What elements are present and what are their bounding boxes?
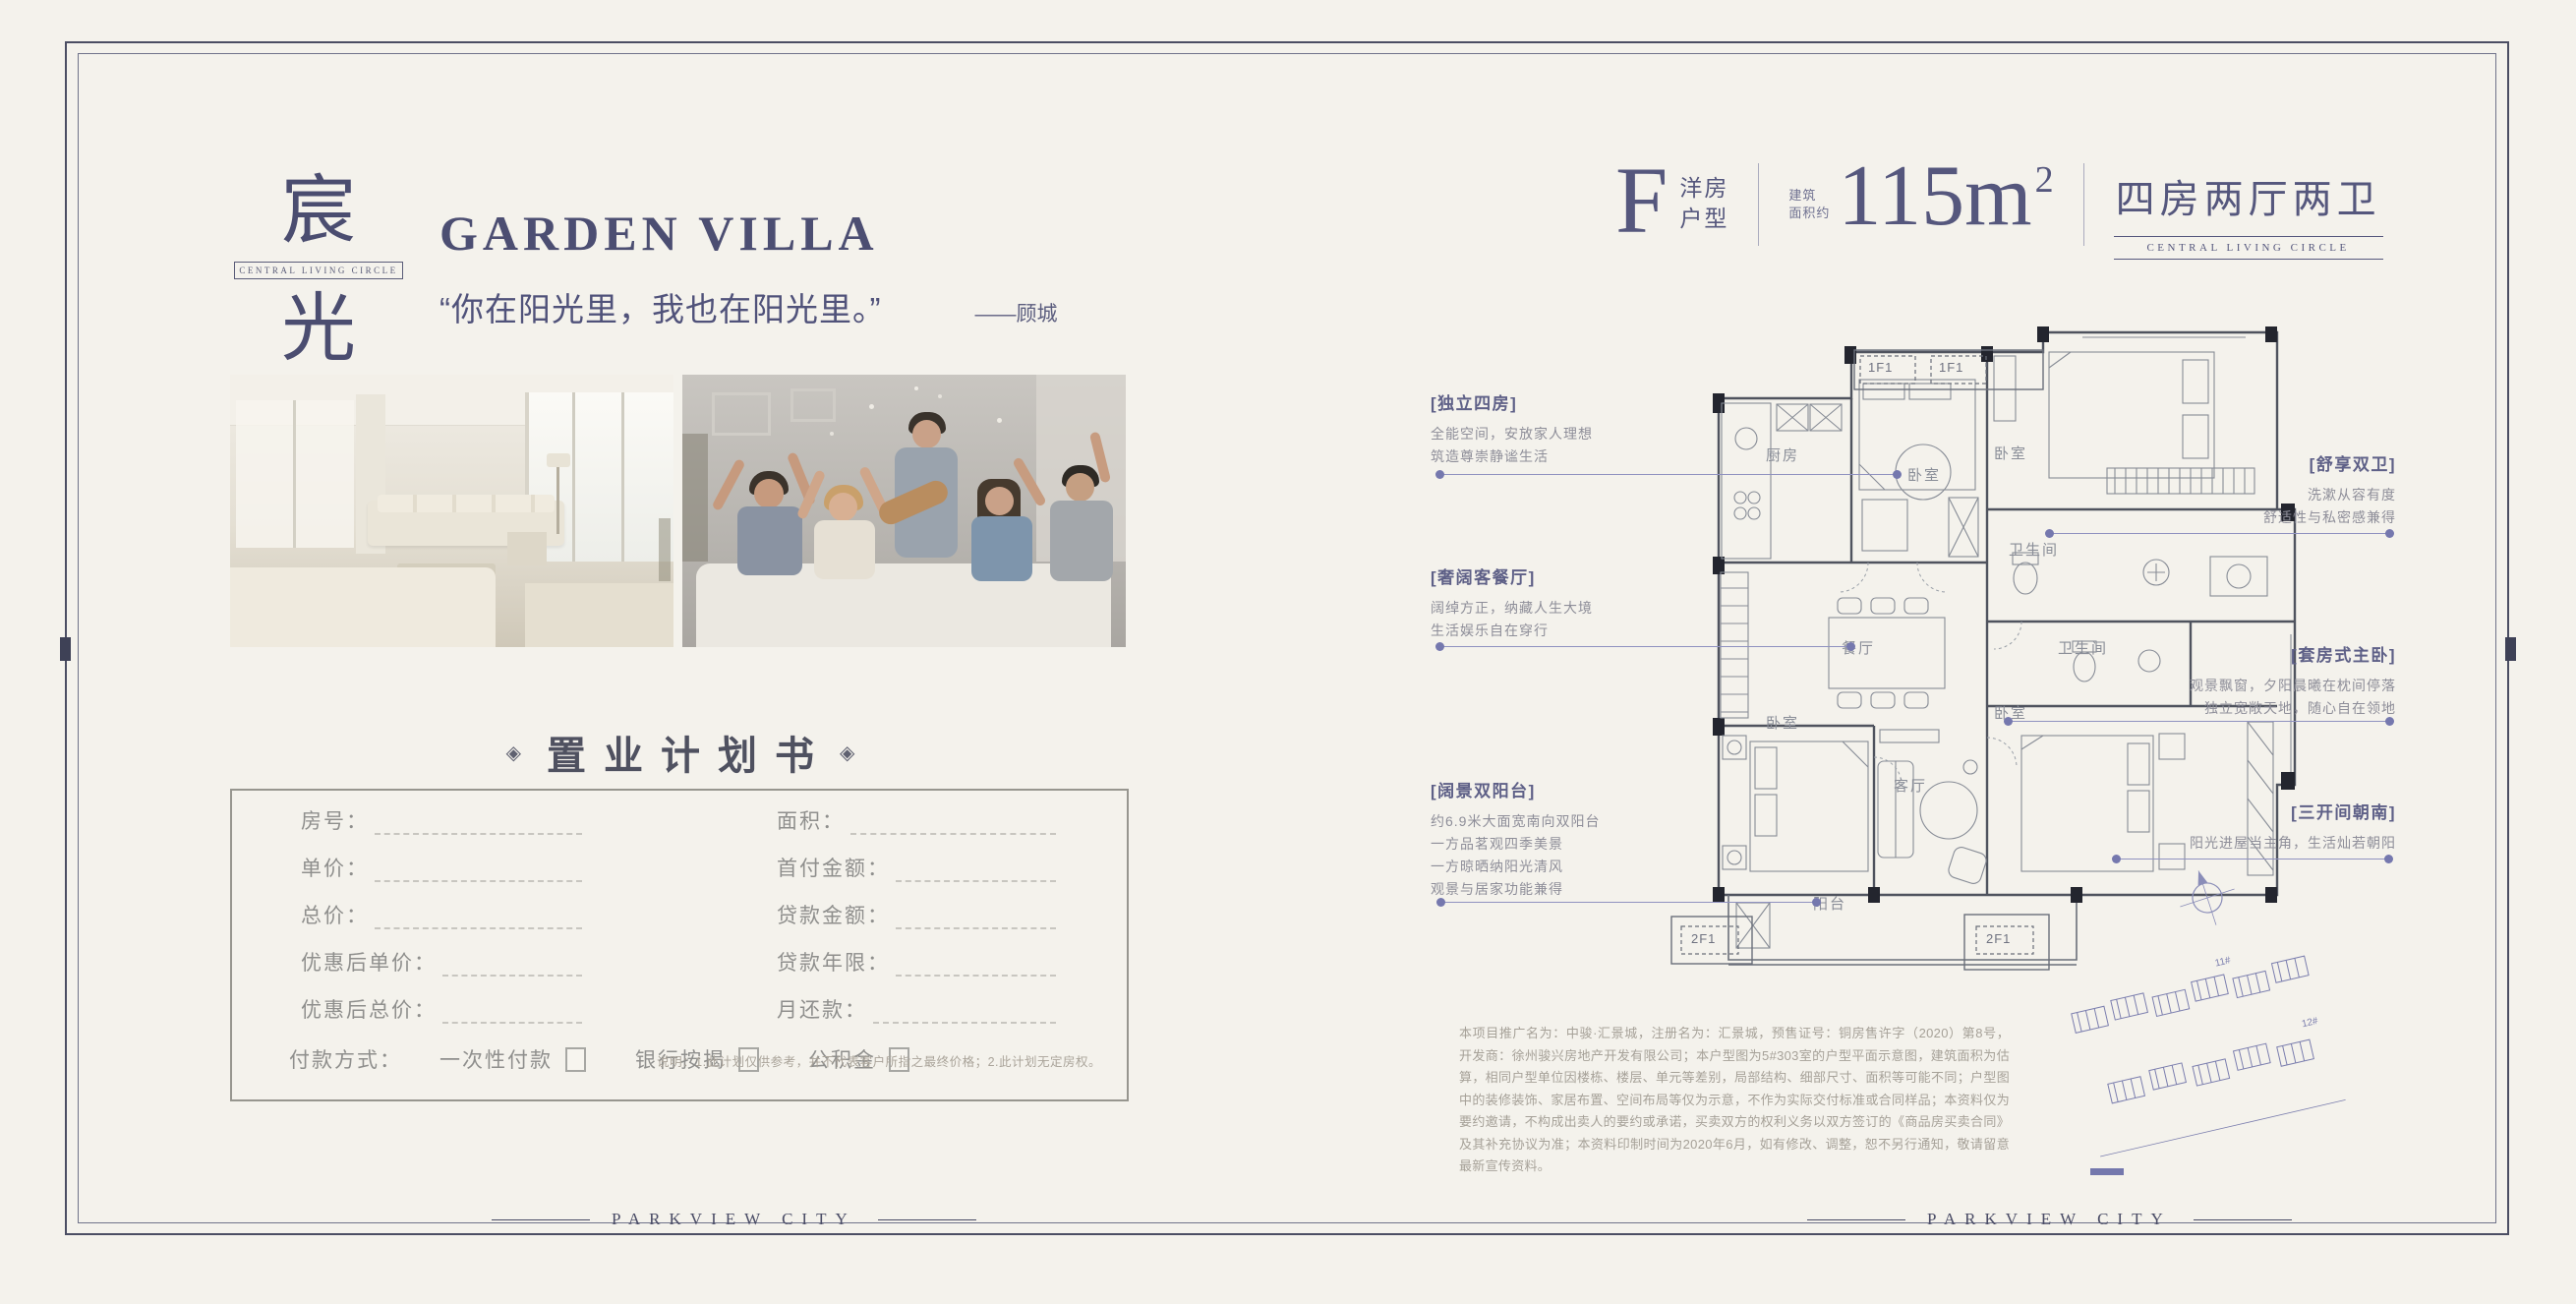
field-input-line[interactable] xyxy=(375,925,582,929)
area-prefix-line: 面积约 xyxy=(1788,205,1830,222)
form-note: 说明：1.此计划仅供参考，并不代表客户所指之最终价格；2.此计划无定房权。 xyxy=(657,1051,1101,1070)
unit-tag: 2F1 xyxy=(1691,931,1716,946)
quote-author: ——顾城 xyxy=(974,298,1057,327)
annotation-line: 观景飘窗，夕阳晨曦在枕间停落 xyxy=(2072,675,2396,697)
person-torso xyxy=(971,516,1032,581)
field-label-monthly-payment: 月还款： xyxy=(777,994,867,1024)
field-input-line[interactable] xyxy=(850,831,1056,835)
plant-shape xyxy=(682,434,708,562)
annotation-title: [套房式主卧] xyxy=(2072,641,2396,666)
field-input-line[interactable] xyxy=(873,1020,1056,1024)
room-label-bedroom-north: 卧室 xyxy=(1907,464,1941,485)
room-label-kitchen: 厨房 xyxy=(1766,445,1799,465)
unit-tag: 1F1 xyxy=(1868,360,1893,375)
annotation-line: 阳光进屋当主角，生活灿若朝阳 xyxy=(2072,832,2396,855)
annotation-line: 阔绰方正，纳藏人生大境 xyxy=(1431,597,1755,620)
quote-text: “你在阳光里，我也在阳光里。” xyxy=(439,283,881,330)
footer-text: PARKVIEW CITY xyxy=(1927,1210,2172,1229)
person-torso xyxy=(1050,501,1113,581)
annotation-line: 观景与居家功能兼得 xyxy=(1431,878,1755,901)
form-row: 优惠后总价： xyxy=(301,983,582,1031)
door-swings xyxy=(1839,563,2021,785)
form-row: 优惠后单价： xyxy=(301,936,582,983)
confetti-dot xyxy=(914,386,918,390)
window-mullion xyxy=(293,400,296,548)
room-label-living: 客厅 xyxy=(1894,775,1927,796)
legal-disclaimer: 本项目推广名为：中骏·汇景城，注册名为：汇景城，预售证号：铜房售许字（2020）… xyxy=(1459,1023,2010,1178)
form-row: 首付金额： xyxy=(777,842,1056,889)
footer-text: PARKVIEW CITY xyxy=(612,1210,856,1229)
form-column-left: 房号： 单价： 总价： 优惠后单价： 优惠后总价： xyxy=(301,795,582,1031)
payment-method-label: 付款方式： xyxy=(289,1044,402,1074)
logo-tagline: CENTRAL LIVING CIRCLE xyxy=(234,262,403,279)
footer-rule xyxy=(492,1219,590,1220)
annotation-line: 一方晾晒纳阳光清风 xyxy=(1431,856,1755,878)
footer-rule xyxy=(878,1219,976,1220)
plant-shape xyxy=(659,518,671,581)
field-input-line[interactable] xyxy=(896,973,1056,977)
wall-art-shape xyxy=(712,392,771,436)
field-label-loan-amount: 贷款金额： xyxy=(777,900,890,929)
leader-line xyxy=(1438,902,1819,903)
area-prefix: 建筑 面积约 xyxy=(1788,187,1830,222)
annotation-title: [三开间朝南] xyxy=(2072,799,2396,823)
window-mullion xyxy=(621,392,624,562)
field-input-line[interactable] xyxy=(896,925,1056,929)
annotation-south-facing: [三开间朝南] 阳光进屋当主角，生活灿若朝阳 xyxy=(2072,799,2396,855)
field-input-line[interactable] xyxy=(442,1020,582,1024)
person-head xyxy=(985,487,1014,515)
living-room-photo xyxy=(230,375,673,647)
room-label-bedroom-northeast: 卧室 xyxy=(1994,443,2027,463)
area-prefix-line: 建筑 xyxy=(1788,187,1830,205)
annotation-double-balcony: [阔景双阳台] 约6.9米大面宽南向双阳台 一方品茗观四季美景 一方晾晒纳阳光清… xyxy=(1431,777,1755,901)
leader-line xyxy=(1437,474,1900,475)
header-divider xyxy=(2083,163,2084,246)
form-row: 贷款金额： xyxy=(777,889,1056,936)
layout-block: 四房两厅两卫 CENTRAL LIVING CIRCLE xyxy=(2114,167,2383,260)
field-label-room: 房号： xyxy=(301,805,369,835)
quote-row: “你在阳光里，我也在阳光里。” ——顾城 xyxy=(439,283,1057,330)
annotation-double-bath: [舒享双卫] 洗漱从容有度 舒适性与私密感兼得 xyxy=(2072,450,2396,529)
photo-strip xyxy=(230,375,1126,647)
left-edge-marker xyxy=(60,637,71,661)
unit-tag: 2F1 xyxy=(1986,931,2011,946)
field-input-line[interactable] xyxy=(442,973,582,977)
page-title: GARDEN VILLA xyxy=(439,205,879,262)
site-plan-accent xyxy=(2090,1168,2124,1175)
unit-type-letter: F xyxy=(1615,157,1668,244)
person-head xyxy=(1066,473,1094,502)
header-divider xyxy=(1758,163,1759,246)
form-row: 单价： xyxy=(301,842,582,889)
person-torso xyxy=(814,520,875,579)
wall-art-shape xyxy=(790,388,836,422)
leader-line xyxy=(2047,533,2392,534)
ornament-icon: ◈ xyxy=(506,741,521,765)
person-head xyxy=(829,493,857,521)
unit-type-label: 洋房 户型 xyxy=(1679,173,1728,234)
field-input-line[interactable] xyxy=(375,831,582,835)
area-group: 建筑 面积约 115m 2 xyxy=(1788,161,2053,232)
right-edge-marker xyxy=(2505,637,2516,661)
annotation-title: [舒享双卫] xyxy=(2072,450,2396,475)
area-value: 115m xyxy=(1838,161,2031,232)
confetti-dot xyxy=(869,404,874,409)
brand-logo: 宸 CENTRAL LIVING CIRCLE 光 xyxy=(234,173,403,370)
form-row: 月还款： xyxy=(777,983,1056,1031)
ornament-icon: ◈ xyxy=(840,741,854,765)
room-label-bedroom-southwest: 卧室 xyxy=(1766,712,1799,733)
footer-wordmark-left: PARKVIEW CITY xyxy=(492,1210,976,1229)
annotation-line: 一方品茗观四季美景 xyxy=(1431,833,1755,856)
annotation-line: 全能空间，安放家人理想 xyxy=(1431,423,1755,445)
logo-character-bottom: 光 xyxy=(234,291,403,370)
person-torso xyxy=(737,506,802,575)
payment-option-onetime: 一次性付款 xyxy=(439,1044,586,1074)
celebration-photo xyxy=(682,375,1126,647)
annotation-line: 洗漱从容有度 xyxy=(2072,484,2396,506)
field-label-loan-term: 贷款年限： xyxy=(777,947,890,977)
unit-type-line: 户型 xyxy=(1679,204,1728,234)
leader-line xyxy=(2006,721,2392,722)
chaise-shape xyxy=(525,583,673,647)
person-head xyxy=(912,420,941,448)
area-superscript: 2 xyxy=(2035,161,2054,199)
payment-option-label: 一次性付款 xyxy=(439,1044,553,1074)
cushion-shape xyxy=(378,495,555,512)
confetti-dot xyxy=(997,418,1002,423)
room-label-bathroom-1: 卫生间 xyxy=(2009,539,2059,560)
logo-character-top: 宸 xyxy=(234,173,403,252)
form-column-right: 面积： 首付金额： 贷款金额： 贷款年限： 月还款： xyxy=(777,795,1056,1031)
annotation-line: 筑造尊崇静谧生活 xyxy=(1431,445,1755,468)
field-label-unit-price: 单价： xyxy=(301,853,369,882)
payment-checkbox-onetime[interactable] xyxy=(565,1047,586,1072)
annotation-line: 独立宽敞天地，随心自在领地 xyxy=(2072,697,2396,720)
unit-tag: 1F1 xyxy=(1939,360,1963,375)
footer-rule xyxy=(2194,1219,2292,1220)
layout-rule xyxy=(2114,259,2383,260)
footer-wordmark-right: PARKVIEW CITY xyxy=(1807,1210,2292,1229)
field-label-area: 面积： xyxy=(777,805,845,835)
annotation-living-dining: [奢阔客餐厅] 阔绰方正，纳藏人生大境 生活娱乐自在穿行 xyxy=(1431,563,1755,642)
field-input-line[interactable] xyxy=(896,878,1056,882)
field-label-total-price: 总价： xyxy=(301,900,369,929)
confetti-dot xyxy=(830,432,834,436)
unit-type-line: 洋房 xyxy=(1679,173,1728,204)
brochure-page: 宸 CENTRAL LIVING CIRCLE 光 GARDEN VILLA “… xyxy=(0,0,2576,1304)
field-label-discount-total-price: 优惠后总价： xyxy=(301,994,437,1024)
annotation-master-suite: [套房式主卧] 观景飘窗，夕阳晨曦在枕间停落 独立宽敞天地，随心自在领地 xyxy=(2072,641,2396,720)
form-row: 贷款年限： xyxy=(777,936,1056,983)
form-row: 面积： xyxy=(777,795,1056,842)
annotation-line: 舒适性与私密感兼得 xyxy=(2072,506,2396,529)
field-label-downpayment: 首付金额： xyxy=(777,853,890,882)
form-row: 总价： xyxy=(301,889,582,936)
plan-book-title: 置业计划书 xyxy=(547,724,832,781)
person-arm xyxy=(711,458,745,511)
annotation-line: 生活娱乐自在穿行 xyxy=(1431,620,1755,642)
plan-book-heading: ◈ 置业计划书 ◈ xyxy=(230,724,1131,781)
annotation-title: [独立四房] xyxy=(1431,389,1755,414)
lamp-shape xyxy=(556,465,559,534)
sofa-shape xyxy=(230,567,496,647)
layout-subtitle: CENTRAL LIVING CIRCLE xyxy=(2114,237,2383,259)
annotation-four-rooms: [独立四房] 全能空间，安放家人理想 筑造尊崇静谧生活 xyxy=(1431,389,1755,468)
side-table-shape xyxy=(507,532,547,565)
lamp-shade-shape xyxy=(547,453,570,467)
window-mullion xyxy=(572,392,575,562)
annotation-title: [奢阔客餐厅] xyxy=(1431,563,1755,588)
field-label-discount-unit-price: 优惠后单价： xyxy=(301,947,437,977)
annotation-title: [阔景双阳台] xyxy=(1431,777,1755,801)
field-input-line[interactable] xyxy=(375,878,582,882)
leader-line xyxy=(2114,859,2391,859)
sofa-shape xyxy=(696,563,1111,647)
unit-header: F 洋房 户型 建筑 面积约 115m 2 四房两厅两卫 CENTRAL LIV… xyxy=(1615,157,2383,260)
footer-rule xyxy=(1807,1219,1905,1220)
person-head xyxy=(754,479,784,508)
plan-book-form: 房号： 单价： 总价： 优惠后单价： 优惠后总价： 面积： xyxy=(230,789,1129,1101)
leader-line xyxy=(1437,646,1853,647)
form-row: 房号： xyxy=(301,795,582,842)
layout-name: 四房两厅两卫 xyxy=(2114,167,2383,236)
annotation-line: 约6.9米大面宽南向双阳台 xyxy=(1431,810,1755,833)
confetti-dot xyxy=(938,394,942,398)
balcony-rail xyxy=(1728,895,2077,965)
